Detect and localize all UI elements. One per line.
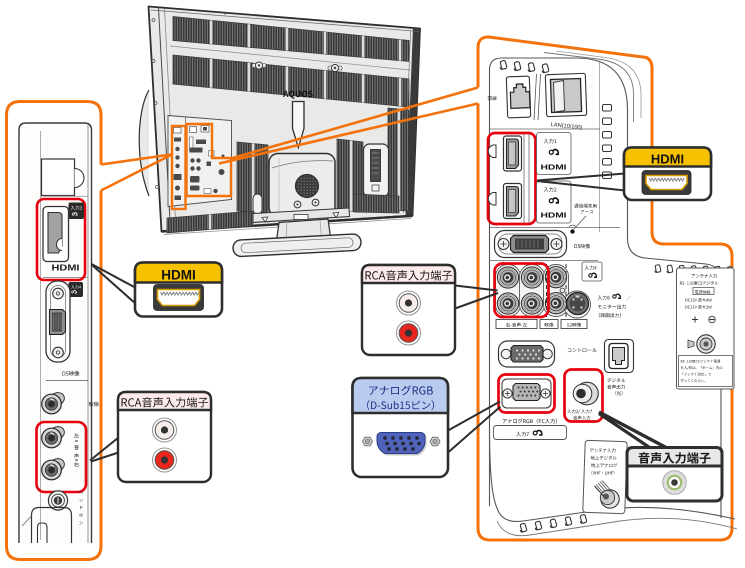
svg-text:HDMI: HDMI	[541, 211, 567, 220]
svg-text:HDMI: HDMI	[651, 152, 684, 167]
svg-text:HDMI: HDMI	[541, 163, 567, 172]
svg-text:HDMI: HDMI	[161, 268, 196, 283]
svg-text:HDMI: HDMI	[52, 264, 80, 273]
